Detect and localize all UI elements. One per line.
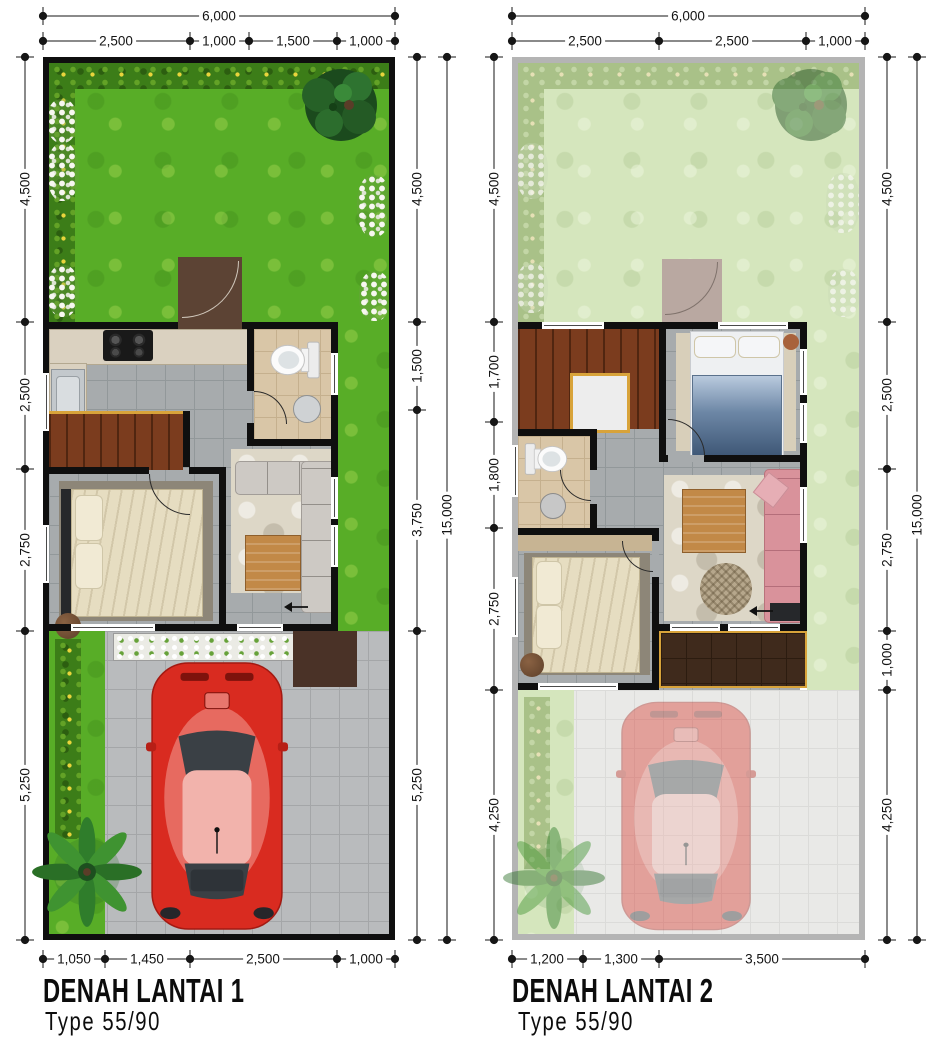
dim-right-seg: 1,000 — [880, 640, 895, 680]
boundary-wall-top — [512, 57, 865, 63]
dim-top-seg: 2,500 — [565, 34, 605, 49]
tree-icon-faded — [759, 55, 859, 155]
flower-shrub — [357, 175, 391, 237]
dim-right-seg: 2,500 — [880, 375, 895, 415]
dim-left-seg: 2,500 — [18, 375, 33, 415]
entry-arrow-icon — [748, 605, 774, 617]
bathroom-basin-icon — [293, 395, 321, 423]
flower-shrub — [828, 269, 860, 317]
floor-plan-2 — [512, 57, 865, 940]
boundary-wall-right — [859, 57, 865, 940]
window — [800, 487, 807, 543]
side-yard-lawn-faded — [807, 322, 859, 690]
dim-bottom-seg: 3,500 — [742, 952, 782, 967]
window — [331, 477, 338, 519]
dim-right-total: 15,000 — [910, 491, 925, 538]
dim-top-seg: 1,000 — [199, 34, 239, 49]
window — [718, 322, 788, 329]
dim-bottom-seg: 2,500 — [243, 952, 283, 967]
dim-top-seg: 2,500 — [96, 34, 136, 49]
window — [43, 525, 49, 583]
window — [670, 624, 720, 631]
flower-planter — [113, 633, 299, 661]
dim-bottom-seg: 1,050 — [54, 952, 94, 967]
dim-left-seg: 4,250 — [487, 795, 502, 835]
window — [43, 373, 49, 431]
side-yard-lawn — [338, 322, 389, 631]
flower-shrub — [516, 143, 548, 199]
stove-icon — [103, 330, 153, 361]
entry-porch — [293, 631, 357, 687]
bedroom2-wall-top — [518, 528, 659, 535]
plan2-title: DENAH LANTAI 2 — [512, 972, 713, 1010]
hedge-driveway — [55, 639, 81, 839]
stairs-wall — [183, 411, 190, 467]
dim-left-seg: 4,500 — [18, 169, 33, 209]
coffee-table — [245, 535, 301, 591]
pillow — [75, 543, 103, 589]
pillow — [75, 495, 103, 541]
car-icon-faded — [616, 699, 756, 933]
toilet-icon — [267, 339, 323, 381]
bathroom-wall-left — [247, 329, 254, 391]
dim-right-total: 15,000 — [440, 491, 455, 538]
dim-right-seg: 4,500 — [410, 169, 425, 209]
dim-top-total: 6,000 — [199, 9, 239, 24]
window — [728, 624, 780, 631]
boundary-wall-bottom — [43, 934, 395, 940]
dim-top-seg: 1,000 — [346, 34, 386, 49]
dim-right-seg: 4,500 — [880, 169, 895, 209]
door-opening — [652, 541, 659, 577]
boundary-wall-left — [43, 57, 49, 940]
dim-left-seg: 1,800 — [487, 455, 502, 495]
flower-shrub — [47, 99, 77, 143]
boundary-wall-left — [512, 57, 518, 940]
window — [512, 445, 518, 497]
stairs — [49, 411, 183, 470]
plan2-subtitle: Type 55/90 — [518, 1006, 634, 1037]
entry-arrow-icon — [283, 601, 309, 613]
boundary-wall-bottom — [512, 934, 865, 940]
dim-right-seg: 2,750 — [880, 530, 895, 570]
floor-plan-sheet: 6,000 2,500 1,000 1,500 1,000 4,500 2,50… — [0, 0, 932, 1055]
car-icon — [146, 659, 288, 933]
pillow — [694, 336, 736, 358]
bathroom-wall-top — [518, 429, 597, 436]
dim-bottom-seg: 1,450 — [127, 952, 167, 967]
tree-icon — [289, 55, 389, 155]
coffee-table — [682, 489, 746, 553]
dim-right-seg: 5,250 — [410, 765, 425, 805]
floor-plan-1 — [43, 57, 395, 940]
blanket-blue — [692, 375, 782, 457]
palm-tree-icon-faded — [502, 823, 606, 933]
pillow — [536, 561, 562, 605]
door-opening — [668, 455, 704, 462]
window — [331, 525, 338, 567]
dim-left-seg: 2,750 — [487, 589, 502, 629]
bathroom-wall-bottom — [247, 439, 338, 446]
bed-headboard — [61, 489, 71, 615]
plan1-title: DENAH LANTAI 1 — [43, 972, 244, 1010]
dim-top-seg: 1,000 — [815, 34, 855, 49]
bedroom-wall-top — [49, 467, 149, 474]
window — [538, 683, 618, 690]
window — [800, 403, 807, 443]
dim-top-seg: 2,500 — [712, 34, 752, 49]
dim-bottom-seg: 1,200 — [527, 952, 567, 967]
dim-right-seg: 1,500 — [410, 346, 425, 386]
bedroom-wall-right — [219, 467, 226, 624]
dim-top-total: 6,000 — [668, 9, 708, 24]
dim-top-seg: 1,500 — [273, 34, 313, 49]
stairs-wall-right — [659, 322, 666, 462]
window — [542, 322, 604, 329]
bedside-stool — [783, 334, 799, 350]
side-cabinet — [770, 603, 800, 621]
dim-bottom-seg: 1,000 — [346, 952, 386, 967]
wash-basin-icon — [540, 493, 566, 519]
bathroom-wall-right — [590, 436, 597, 470]
flower-shrub — [826, 173, 860, 233]
ottoman — [700, 563, 752, 615]
flower-shrub — [516, 263, 548, 313]
window — [331, 353, 338, 395]
dim-right-seg: 4,250 — [880, 795, 895, 835]
dim-left-seg: 4,500 — [487, 169, 502, 209]
dim-left-seg: 5,250 — [18, 765, 33, 805]
bedside-table — [520, 653, 544, 677]
window — [71, 624, 155, 631]
balcony — [659, 631, 807, 688]
flower-shrub — [359, 271, 391, 321]
window — [800, 349, 807, 395]
window — [237, 624, 283, 631]
dim-left-seg: 2,750 — [18, 530, 33, 570]
boundary-wall-right — [389, 57, 395, 940]
bathroom-wall-left — [247, 423, 254, 439]
dim-right-seg: 3,750 — [410, 500, 425, 540]
stair-landing — [570, 373, 630, 433]
flower-shrub — [47, 265, 79, 317]
pillow — [738, 336, 780, 358]
dim-left-seg: 1,700 — [487, 352, 502, 392]
dim-bottom-seg: 1,300 — [601, 952, 641, 967]
boundary-wall-top — [43, 57, 395, 63]
palm-tree-icon — [31, 813, 143, 931]
pillow — [536, 605, 562, 649]
flower-shrub — [47, 143, 79, 201]
window — [512, 577, 518, 637]
plan1-subtitle: Type 55/90 — [45, 1006, 161, 1037]
